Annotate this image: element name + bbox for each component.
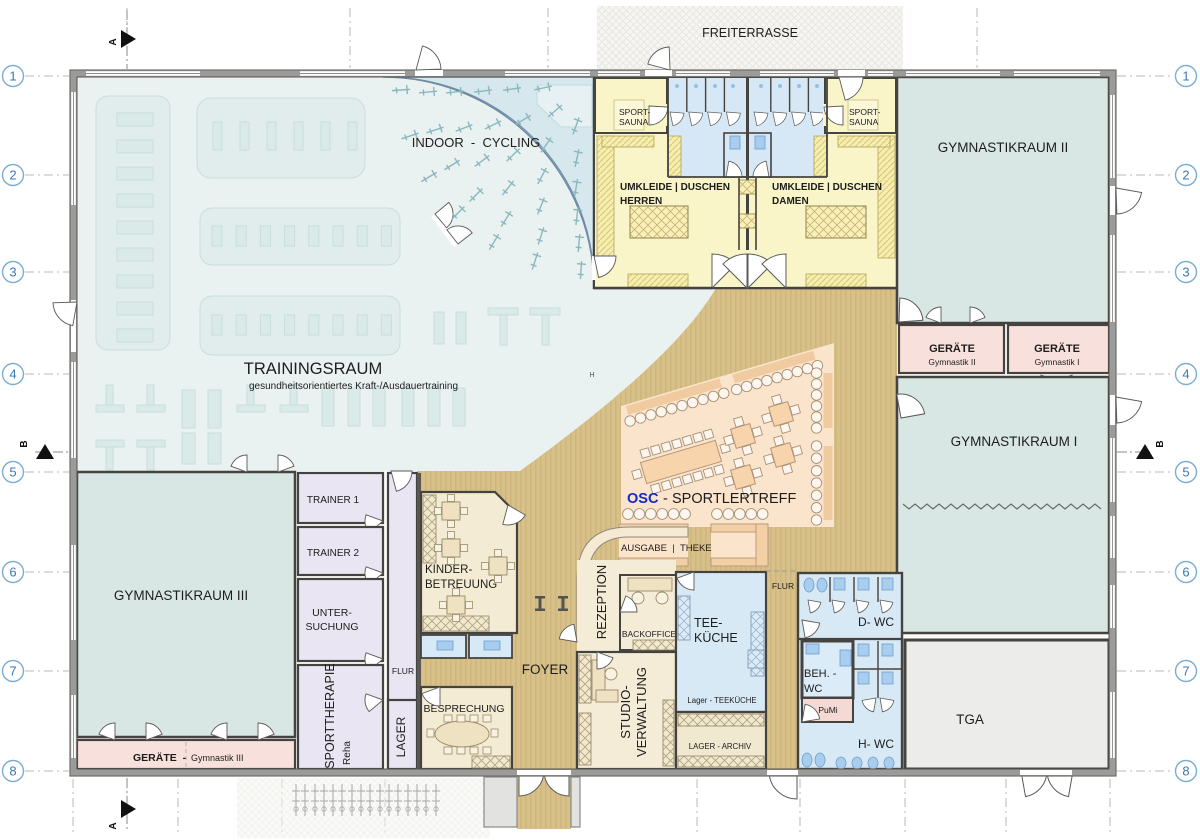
svg-text:A: A (108, 38, 119, 45)
svg-text:Lager - TEEKÜCHE: Lager - TEEKÜCHE (687, 696, 756, 705)
svg-text:VERWALTUNG: VERWALTUNG (634, 667, 649, 757)
svg-text:TRAININGSRAUM: TRAININGSRAUM (244, 360, 382, 378)
svg-text:5: 5 (1182, 465, 1189, 480)
svg-text:D- WC: D- WC (858, 615, 894, 629)
svg-text:Gymnastik I: Gymnastik I (1035, 357, 1080, 367)
svg-text:GYMNASTIKRAUM I: GYMNASTIKRAUM I (951, 434, 1078, 449)
svg-text:UMKLEIDE | DUSCHEN: UMKLEIDE | DUSCHEN (620, 182, 730, 193)
svg-text:LAGER - ARCHIV: LAGER - ARCHIV (689, 742, 752, 751)
svg-text:2: 2 (9, 168, 16, 183)
svg-text:H- WC: H- WC (858, 737, 894, 751)
svg-text:-: - (663, 491, 668, 507)
svg-text:SPORT-: SPORT- (619, 107, 651, 117)
svg-text:TGA: TGA (956, 712, 984, 727)
svg-text:SPORT-: SPORT- (849, 107, 881, 117)
svg-text:6: 6 (9, 565, 16, 580)
svg-text:7: 7 (1182, 664, 1189, 679)
svg-text:7: 7 (9, 664, 16, 679)
svg-text:TRAINER 1: TRAINER 1 (307, 495, 360, 506)
svg-text:FREITERRASSE: FREITERRASSE (702, 26, 798, 40)
svg-text:BETREUUNG: BETREUUNG (425, 579, 497, 591)
svg-text:INDOOR - CYCLING: INDOOR - CYCLING (412, 135, 541, 150)
svg-text:UMKLEIDE | DUSCHEN: UMKLEIDE | DUSCHEN (772, 182, 882, 193)
svg-text:4: 4 (9, 367, 16, 382)
svg-text:BEH. -: BEH. - (804, 668, 837, 680)
svg-text:8: 8 (9, 764, 16, 779)
svg-text:TRAINER 2: TRAINER 2 (307, 548, 360, 559)
svg-text:AUSGABE | THEKE: AUSGABE | THEKE (621, 543, 712, 554)
svg-text:1: 1 (1182, 69, 1189, 84)
svg-text:A: A (108, 822, 119, 829)
svg-text:FLUR: FLUR (772, 581, 794, 591)
svg-text:FLUR: FLUR (392, 666, 414, 676)
svg-text:2: 2 (1182, 168, 1189, 183)
svg-text:GYMNASTIKRAUM III: GYMNASTIKRAUM III (114, 588, 248, 603)
svg-text:WC: WC (804, 683, 822, 695)
svg-text:GERÄTE: GERÄTE (929, 342, 975, 355)
svg-text:Reha: Reha (342, 741, 353, 765)
svg-text:REZEPTION: REZEPTION (594, 565, 609, 639)
svg-text:GERÄTE -: GERÄTE - (133, 751, 187, 764)
svg-text:3: 3 (9, 265, 16, 280)
svg-text:6: 6 (1182, 565, 1189, 580)
svg-text:5: 5 (9, 465, 16, 480)
svg-text:B: B (1155, 440, 1166, 447)
svg-text:DAMEN: DAMEN (772, 196, 809, 207)
svg-text:HERREN: HERREN (620, 196, 662, 207)
svg-text:UNTER-: UNTER- (312, 607, 352, 619)
svg-text:SPORTLERTREFF: SPORTLERTREFF (672, 491, 796, 507)
svg-text:OSC: OSC (627, 491, 659, 507)
svg-text:STUDIO-: STUDIO- (618, 685, 633, 738)
svg-text:gesundheitsorientiertes Kraft-: gesundheitsorientiertes Kraft-/Ausdauert… (249, 381, 458, 392)
svg-text:SPORTTHERAPIE: SPORTTHERAPIE (323, 663, 337, 768)
svg-text:GERÄTE: GERÄTE (1034, 342, 1080, 355)
svg-text:SAUNA: SAUNA (619, 117, 649, 127)
svg-text:KÜCHE: KÜCHE (694, 631, 738, 645)
svg-text:Gymnastik III: Gymnastik III (191, 753, 244, 763)
svg-text:SAUNA: SAUNA (849, 117, 879, 127)
svg-text:H: H (589, 372, 594, 379)
svg-text:Gymnastik II: Gymnastik II (928, 357, 975, 367)
svg-text:8: 8 (1182, 764, 1189, 779)
svg-text:TEE-: TEE- (694, 616, 722, 630)
svg-text:PuMi: PuMi (818, 705, 837, 715)
svg-text:SUCHUNG: SUCHUNG (305, 621, 358, 633)
svg-text:4: 4 (1182, 367, 1189, 382)
svg-text:1: 1 (9, 69, 16, 84)
svg-text:BACKOFFICE: BACKOFFICE (622, 629, 677, 639)
svg-text:LAGER: LAGER (394, 716, 408, 757)
svg-text:KINDER-: KINDER- (425, 564, 472, 576)
svg-text:FOYER: FOYER (522, 662, 569, 677)
svg-text:GYMNASTIKRAUM II: GYMNASTIKRAUM II (938, 140, 1069, 155)
svg-text:B: B (19, 440, 30, 447)
svg-text:3: 3 (1182, 265, 1189, 280)
